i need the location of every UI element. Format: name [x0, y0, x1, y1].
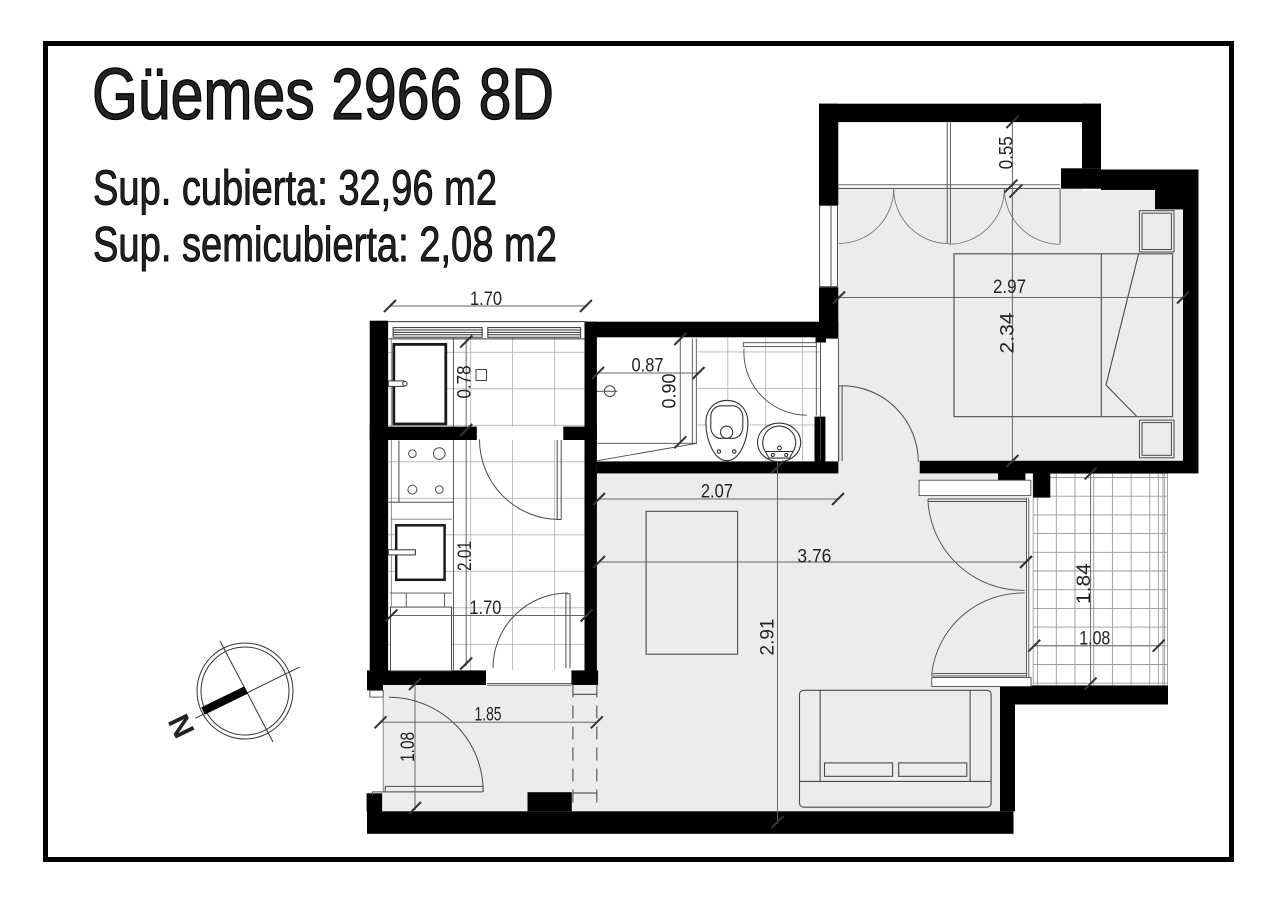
- svg-text:1.84: 1.84: [1074, 563, 1095, 604]
- svg-text:0.87: 0.87: [632, 356, 664, 377]
- svg-text:0.55: 0.55: [996, 136, 1017, 169]
- svg-text:3.76: 3.76: [797, 547, 831, 568]
- svg-text:2.07: 2.07: [701, 482, 733, 503]
- svg-text:Güemes 2966 8D: Güemes 2966 8D: [92, 55, 554, 135]
- svg-text:2.97: 2.97: [993, 277, 1026, 298]
- svg-text:1.08: 1.08: [1079, 629, 1110, 650]
- svg-text:2.01: 2.01: [455, 541, 476, 571]
- svg-text:1.70: 1.70: [470, 289, 502, 310]
- svg-text:0.78: 0.78: [455, 366, 476, 399]
- svg-text:Sup. semicubierta: 2,08 m2: Sup. semicubierta: 2,08 m2: [93, 218, 557, 272]
- svg-text:0.90: 0.90: [659, 374, 680, 409]
- svg-text:1.08: 1.08: [398, 732, 419, 762]
- svg-text:2.91: 2.91: [758, 619, 779, 656]
- svg-text:1.70: 1.70: [469, 598, 501, 619]
- svg-text:Sup. cubierta: 32,96 m2: Sup. cubierta: 32,96 m2: [93, 162, 497, 216]
- svg-text:2.34: 2.34: [998, 312, 1019, 353]
- svg-text:1.85: 1.85: [475, 705, 502, 726]
